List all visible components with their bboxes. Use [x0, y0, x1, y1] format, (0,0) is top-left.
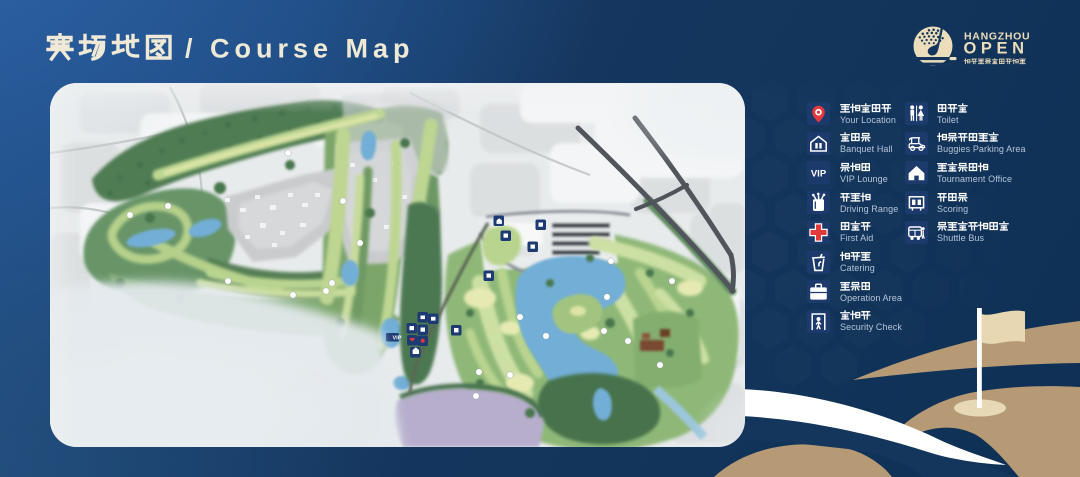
svg-text:OPEN: OPEN [964, 40, 1029, 58]
svg-text:VIP: VIP [811, 169, 827, 180]
svg-text:VIP: VIP [393, 336, 402, 342]
svg-text:/ Course Map: / Course Map [185, 34, 415, 64]
